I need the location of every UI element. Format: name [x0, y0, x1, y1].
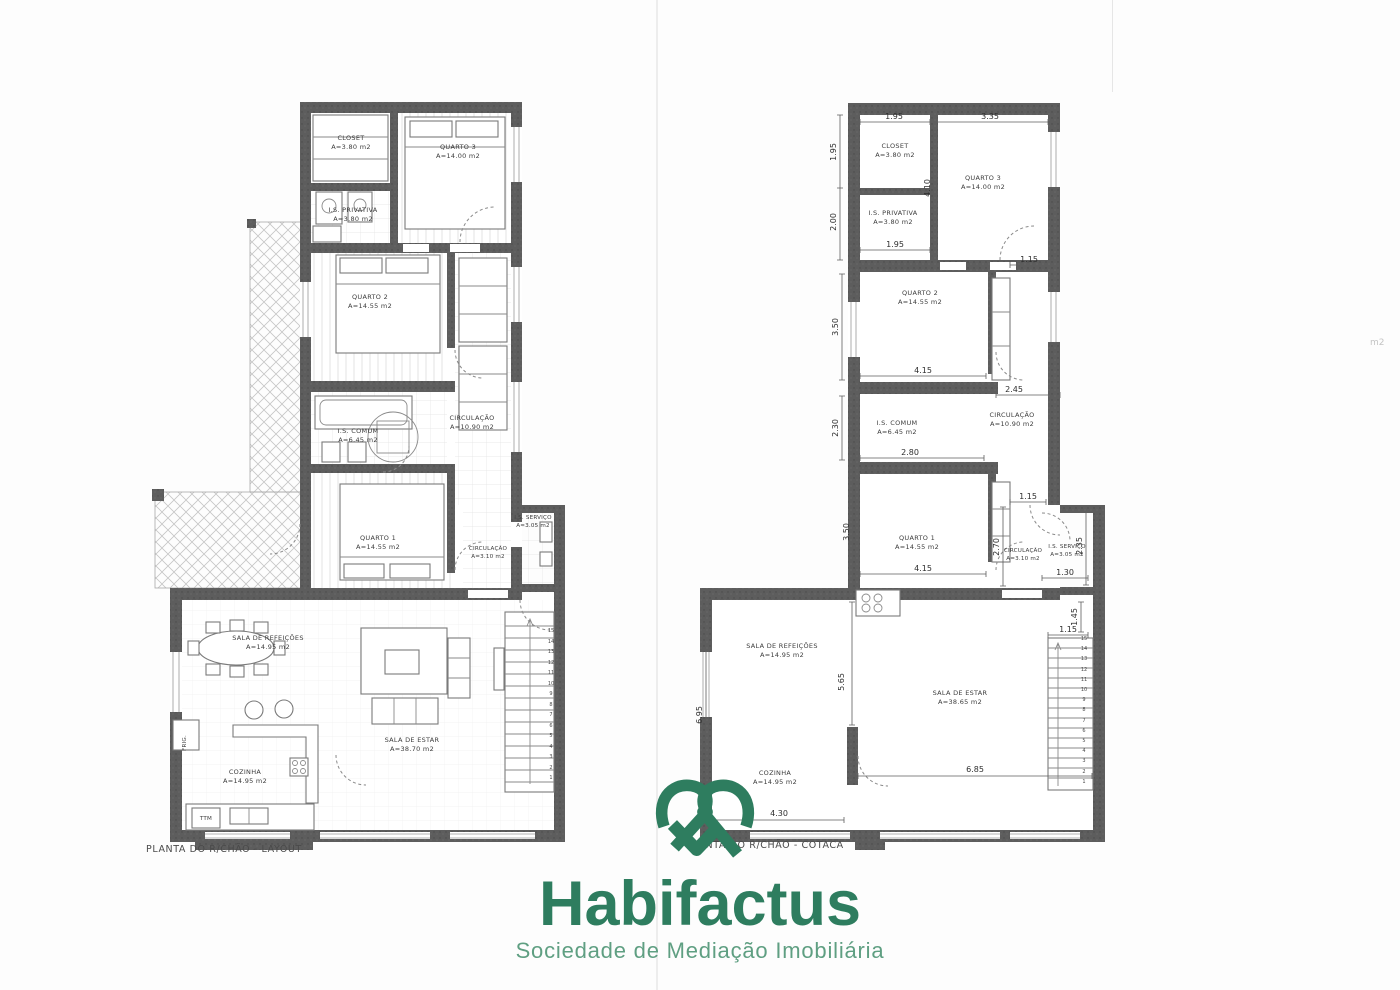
room-label-quarto2: QUARTO 2A=14.55 m2	[348, 293, 392, 310]
room-label-quarto1: QUARTO 1A=14.55 m2	[356, 534, 400, 551]
dim-closet-depth: 4.10	[923, 179, 932, 197]
dim-circ-w: 2.45	[1005, 385, 1023, 394]
dim-top-q3: 3.35	[981, 112, 999, 121]
dim-is-comum-w: 2.80	[901, 448, 919, 457]
dim-top-closet: 1.95	[885, 112, 903, 121]
room-label-is-comum: I.S. COMUMA=6.45 m2	[338, 427, 379, 444]
brand-name: Habifactus	[400, 868, 1000, 940]
stair-numbers-left: 151413121110987654321	[546, 629, 556, 781]
room-label-cozinha: COZINHAA=14.95 m2	[223, 768, 267, 785]
room-label-is-comum: I.S. COMUMA=6.45 m2	[877, 419, 918, 436]
dim-living-h: 6.95	[695, 706, 704, 724]
room-label-sala-estar: SALA DE ESTARA=38.70 m2	[385, 736, 440, 753]
dim-q1-h: 3.50	[842, 523, 851, 541]
dim-stairs-w: 1.15	[1059, 625, 1077, 634]
dim-q2-h: 3.50	[831, 318, 840, 336]
dim-hall-w: 1.15	[1019, 492, 1037, 501]
dim-cozinha-w: 4.30	[770, 809, 788, 818]
brand-tagline: Sociedade de Mediação Imobiliária	[400, 938, 1000, 964]
room-label-quarto2: QUARTO 2A=14.55 m2	[898, 289, 942, 306]
scanned-floorplan-page: m2	[0, 0, 1400, 990]
dim-estar-w: 6.85	[966, 765, 984, 774]
dim-kitchen-split-h: 5.65	[837, 673, 846, 691]
room-label-quarto3: QUARTO 3A=14.00 m2	[961, 174, 1005, 191]
dim-priv-h: 2.00	[829, 213, 838, 231]
stair-numbers-right: 151413121110987654321	[1079, 637, 1089, 785]
heart-ribbon-icon	[646, 772, 764, 877]
dim-is-comum-h: 2.30	[831, 419, 840, 437]
dim-priv-w: 1.95	[886, 240, 904, 249]
dim-circ-h: 2.70	[992, 538, 1001, 556]
floorplan-layout: CLOSETA=3.80 m2 QUARTO 3A=14.00 m2 I.S. …	[150, 92, 570, 862]
dim-closet-h: 1.95	[829, 143, 838, 161]
room-label-sala-estar: SALA DE ESTARA=38.65 m2	[933, 689, 988, 706]
terrace-hatch	[152, 219, 310, 588]
dim-q2-w: 4.15	[914, 366, 932, 375]
room-label-quarto1: QUARTO 1A=14.55 m2	[895, 534, 939, 551]
plan-caption-left: PLANTA DO R/CHÃO - LAYOUT	[146, 844, 302, 855]
room-label-is-privativa: I.S. PRIVATIVAA=3.80 m2	[328, 206, 377, 223]
room-label-is-privativa: I.S. PRIVATIVAA=3.80 m2	[868, 209, 917, 226]
room-label-quarto3: QUARTO 3A=14.00 m2	[436, 143, 480, 160]
dim-q3-door: 1.15	[1020, 255, 1038, 264]
edge-line	[1112, 0, 1113, 92]
floorplan-dimensioned: 1.95 3.35 1.95 2.00 4.10 1.95 1.15 3.50 …	[690, 92, 1110, 862]
dim-stairs-off-h: 1.45	[1070, 608, 1079, 626]
dim-is-servico-w: 1.30	[1056, 568, 1074, 577]
edge-note-text: m2	[1370, 338, 1385, 348]
appliance-label-fridge: FRIG.	[182, 735, 188, 751]
dim-q1-w: 4.15	[914, 564, 932, 573]
appliance-label-washer: TTM	[199, 816, 212, 822]
